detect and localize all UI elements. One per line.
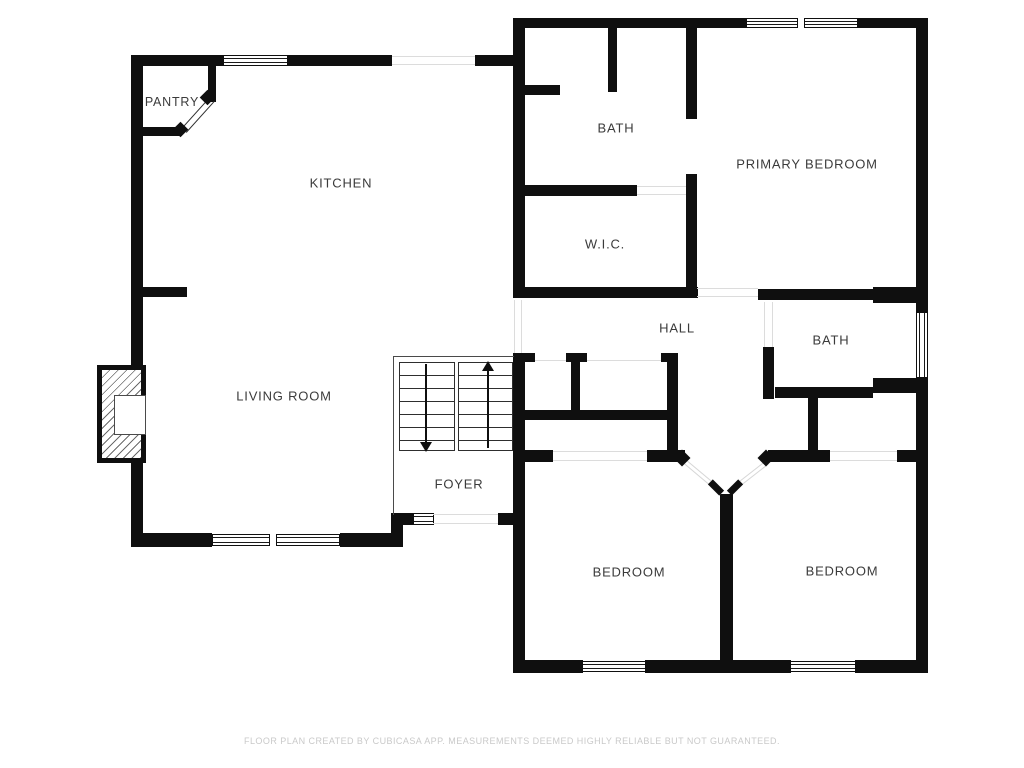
wall-hallclosets-south	[515, 410, 678, 420]
window-kitchen	[223, 55, 288, 66]
window-bedroom-left	[582, 661, 646, 672]
wall-bottom	[645, 660, 791, 673]
window-bedroom-right	[790, 661, 856, 672]
wall-bath-wic-divider	[513, 185, 637, 196]
wall-stair-east	[513, 355, 525, 673]
wall-hallclosets-east	[667, 355, 678, 462]
door-line-hall-closet-a	[535, 360, 566, 361]
wall-bedroom2-north	[897, 450, 918, 462]
wall-kitchen-living-stub	[131, 287, 187, 297]
door-line-closet-right	[830, 451, 897, 452]
floor-plan: PANTRY KITCHEN BATH W.I.C. PRIMARY BEDRO…	[0, 0, 1024, 768]
wall-kitchen-top	[475, 55, 514, 66]
window-bath-right	[916, 312, 928, 378]
stairs-down-arrow-shaft	[425, 364, 427, 442]
entry-door-panel	[413, 513, 434, 525]
wall-bedrooms-divider	[720, 494, 733, 660]
door-line-bedroom-left	[553, 460, 647, 461]
opening-line-foyer	[433, 523, 498, 524]
wall-left	[131, 55, 143, 366]
opening-line-hall	[521, 300, 522, 353]
wall-bath-stub	[525, 85, 560, 95]
opening-line-foyer	[433, 514, 498, 515]
footer-disclaimer: FLOOR PLAN CREATED BY CUBICASA APP. MEAS…	[0, 736, 1024, 746]
door-line-bedroom-left	[553, 451, 647, 452]
wall-bedroom1-north	[523, 450, 553, 462]
wall-left	[131, 462, 143, 537]
door-line-primary	[697, 288, 758, 289]
wall-bathright-bottom	[775, 387, 873, 398]
room-label-bedroom-right: BEDROOM	[806, 564, 879, 579]
opening-line-kitchen-top	[392, 56, 475, 57]
wall-bath-stub	[608, 28, 617, 92]
stairs-flight-left	[399, 362, 455, 451]
wall-kitchen-upper-divider	[513, 18, 525, 298]
door-line-wic	[637, 194, 686, 195]
room-label-primary-bedroom: PRIMARY BEDROOM	[736, 157, 878, 172]
wall-upper-top	[513, 18, 748, 28]
door-line-hall-closet-b	[587, 360, 661, 361]
wall-bathright-bottom	[873, 378, 918, 393]
door-line-wic	[637, 186, 686, 187]
stair-boundary-line	[393, 356, 394, 515]
opening-line-hall	[514, 300, 515, 353]
window-mullion	[269, 534, 277, 546]
wall-bottom	[855, 660, 928, 673]
wall-foyer-south	[395, 513, 414, 525]
door-apex-nub	[727, 479, 743, 495]
wall-hallcloset-stub	[661, 353, 678, 362]
opening-line-kitchen-top	[392, 64, 475, 65]
wall-hallcloset-stub	[566, 353, 587, 362]
wall-bedroom2-north	[768, 450, 830, 462]
wall-wic-hall	[513, 287, 698, 298]
door-line-bath-right	[764, 302, 765, 347]
stairs-up-arrow-shaft	[487, 370, 489, 448]
stairs-down-arrow-head	[420, 442, 432, 452]
door-line-primary	[697, 296, 758, 297]
wall-hallclosets-divider	[571, 362, 580, 410]
room-label-pantry: PANTRY	[145, 95, 199, 109]
room-label-bath-right: BATH	[813, 333, 850, 348]
wall-livingroom-south	[131, 533, 212, 547]
window-mullion	[797, 18, 805, 28]
wall-right	[916, 378, 928, 673]
door-line-bath-right	[772, 302, 773, 347]
room-label-living-room: LIVING ROOM	[236, 389, 331, 404]
room-label-bath-upper: BATH	[598, 121, 635, 136]
room-label-bedroom-left: BEDROOM	[593, 565, 666, 580]
door-line-closet-right	[830, 460, 897, 461]
wall-kitchen-top	[287, 55, 392, 66]
stair-boundary-line	[393, 356, 514, 357]
stairs-up-arrow-head	[482, 361, 494, 371]
room-label-kitchen: KITCHEN	[310, 176, 373, 191]
wall-right	[916, 18, 928, 313]
fireplace-firebox	[114, 395, 146, 435]
wall-bathright-west	[763, 347, 774, 399]
stairs-flight-right	[458, 362, 513, 451]
wall-bath-primary	[686, 174, 697, 288]
wall-bath-primary	[686, 28, 697, 119]
room-label-wic: W.I.C.	[585, 237, 625, 252]
room-label-foyer: FOYER	[435, 477, 484, 492]
room-label-hall: HALL	[659, 321, 695, 336]
wall-bathright-top	[873, 287, 918, 303]
